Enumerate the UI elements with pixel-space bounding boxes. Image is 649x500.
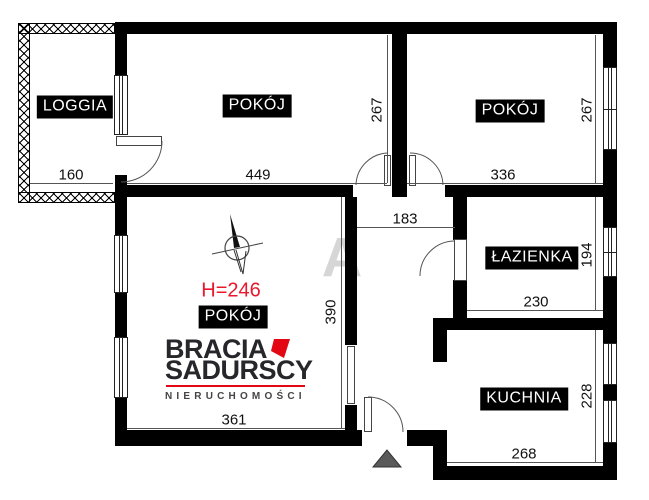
loggia-wall-left — [18, 23, 30, 203]
entrance-door-swing-arc — [368, 397, 403, 432]
wall-middle-h-right — [445, 185, 617, 197]
wall-right-3 — [603, 277, 617, 343]
entrance-triangle-icon — [373, 450, 401, 467]
balcony-door-leaf — [116, 136, 162, 146]
wall-bath-left-upper — [453, 197, 467, 240]
room-b-door-leaf — [347, 346, 355, 404]
dim-room-tr-height: 267 — [579, 97, 596, 122]
wall-bath-left-lower — [453, 280, 467, 318]
ceiling-height-note: H=246 — [201, 280, 261, 303]
room-tr-door-leaf — [409, 155, 416, 186]
room-label-kitchen: KUCHNIA — [480, 388, 568, 411]
wall-right-2 — [603, 150, 617, 227]
window-bathroom — [603, 227, 617, 277]
room-label-room-bottom: POKÓJ — [199, 306, 268, 329]
wall-middle-h-left — [115, 185, 353, 197]
room-label-room-top-left: POKÓJ — [223, 95, 292, 118]
window-room-b-upper — [114, 235, 128, 293]
dim-kitchen-width: 268 — [511, 446, 536, 463]
wall-top — [115, 22, 617, 34]
wall-bottom-left — [115, 430, 362, 446]
wall-kitchen-stub — [433, 318, 447, 362]
window-kitchen-upper — [603, 343, 617, 385]
wall-right-4 — [603, 385, 617, 400]
entrance-door-opening — [362, 430, 407, 446]
loggia-wall-bottom — [18, 192, 115, 203]
room-label-room-top-right: POKÓJ — [476, 100, 545, 123]
agency-logo-rule — [166, 385, 305, 387]
dim-room-tr-width: 336 — [490, 167, 515, 184]
agency-logo: BRACIA SADURSCY NIERUCHOMOŚCI — [165, 339, 313, 402]
dim-loggia-width: 160 — [58, 167, 83, 184]
room-tl-door-opening — [353, 185, 392, 197]
wall-right-1 — [603, 22, 617, 67]
bathroom-door-leaf — [454, 239, 467, 281]
window-kitchen-lower — [603, 400, 617, 443]
dim-kitchen-height: 228 — [579, 383, 596, 408]
dim-bath-height: 194 — [579, 242, 596, 267]
wall-between-top-rooms — [392, 22, 407, 197]
balcony-window — [114, 75, 128, 135]
wall-left-1 — [115, 22, 127, 75]
bathroom-door-swing-arc — [420, 241, 455, 276]
window-room-b-lower — [114, 337, 128, 398]
loggia-wall-top — [18, 23, 115, 34]
wall-left-2 — [115, 175, 127, 235]
window-room-tr — [603, 67, 617, 150]
room-label-loggia: LOGGIA — [37, 96, 113, 119]
wall-kitchen-bottom — [433, 466, 617, 480]
entrance-door-leaf — [364, 397, 372, 432]
floor-plan: A — [0, 0, 649, 500]
compass-north-arrow-icon — [212, 214, 263, 274]
dimline-room-b-h — [341, 197, 342, 428]
dim-room-b-width: 361 — [221, 412, 246, 429]
wall-bath-bottom — [433, 318, 603, 330]
agency-logo-tagline: NIERUCHOMOŚCI — [165, 391, 313, 402]
dim-room-b-height: 390 — [323, 299, 340, 324]
wall-hall-left-upper — [345, 197, 357, 345]
room-tr-door-opening — [407, 185, 445, 197]
dim-room-tl-width: 449 — [245, 167, 270, 184]
dimline-room-tl-h — [387, 35, 388, 183]
dim-hall-width: 183 — [392, 211, 417, 228]
dim-bath-width: 230 — [523, 294, 548, 311]
dim-room-tl-height: 267 — [369, 97, 386, 122]
room-label-bathroom: ŁAZIENKA — [485, 247, 578, 270]
wall-left-3 — [115, 293, 127, 337]
agency-logo-brand-bottom: SADURSCY — [165, 360, 313, 381]
